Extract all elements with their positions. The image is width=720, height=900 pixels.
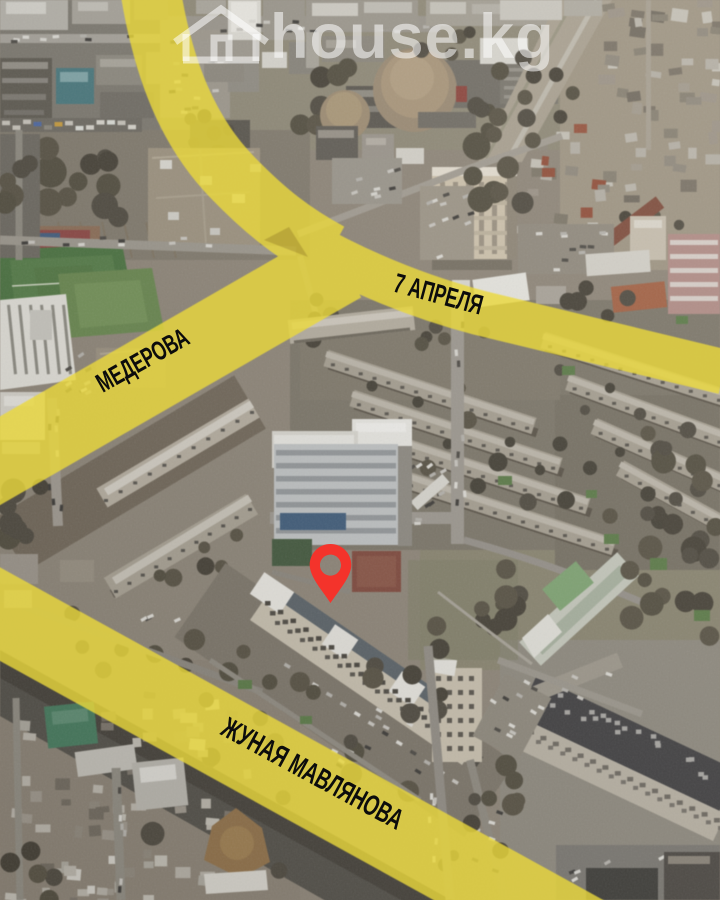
- svg-text:house.kg: house.kg: [270, 2, 555, 72]
